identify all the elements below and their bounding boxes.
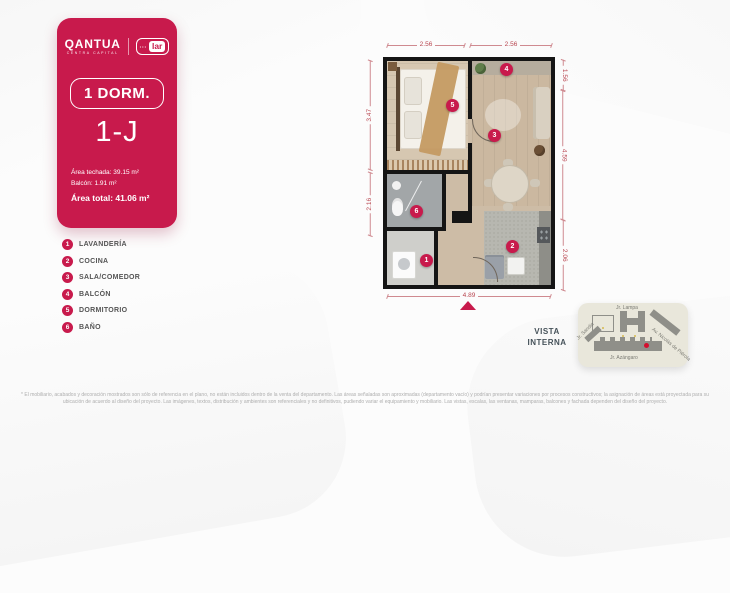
street-label-top: Jr. Lampa (616, 306, 638, 311)
unit-areas: Área techada: 39.15 m² Balcón: 1.91 m² Á… (71, 168, 149, 205)
plan-badge-cocina: 2 (506, 240, 519, 253)
legend-number-badge: 1 (62, 239, 73, 250)
dining-chair (503, 203, 513, 211)
legend-label: SALA/COMEDOR (79, 274, 140, 281)
pillow (404, 111, 422, 139)
dimension-left-top: 3.47 (367, 60, 374, 170)
dimension-right-mid: 4.59 (560, 90, 567, 220)
dimension-left-bottom: 2.16 (367, 172, 374, 236)
plan-badge-dormitorio: 5 (446, 99, 459, 112)
area-roof: Área techada: 39.15 m² (71, 168, 149, 179)
brand-name: QANTUA (65, 38, 121, 50)
logo-divider (128, 38, 129, 55)
legend-label: BAÑO (79, 324, 101, 331)
map-building (626, 318, 639, 325)
dimension-right-top: 1.56 (560, 60, 567, 91)
map-building (594, 341, 662, 351)
room-legend: 1 LAVANDERÍA 2 COCINA 3 SALA/COMEDOR 4 B… (62, 239, 140, 333)
legend-label: LAVANDERÍA (79, 241, 127, 248)
legal-disclaimer: * El mobiliario, acabados y decoración m… (20, 392, 710, 406)
legend-label: DORMITORIO (79, 307, 127, 314)
dimension-right-bottom: 2.06 (560, 220, 567, 291)
legend-item-balcon: 4 BALCÓN (62, 289, 140, 300)
floor-plan (383, 57, 555, 289)
legend-item-bano: 6 BAÑO (62, 322, 140, 333)
legend-item-sala-comedor: 3 SALA/COMEDOR (62, 272, 140, 283)
wall (434, 231, 438, 285)
legend-number-badge: 4 (62, 289, 73, 300)
lar-logo: ••• lar (136, 38, 170, 55)
nightstand (388, 62, 397, 71)
wall (387, 170, 472, 174)
lar-logo-dots: ••• (140, 45, 147, 49)
lar-logo-text: lar (149, 41, 165, 52)
dining-chair (530, 179, 540, 187)
kitchen-sink (507, 257, 525, 275)
unit-type-pill: 1 DORM. (70, 78, 164, 109)
plan-badge-bano: 6 (410, 205, 423, 218)
plan-badge-sala-comedor: 3 (488, 129, 501, 142)
unit-info-card: QANTUA CENTRA CAPITAL ••• lar 1 DORM. 1-… (57, 18, 177, 228)
wall (452, 211, 472, 223)
balcony-plant (475, 63, 486, 74)
brand-logo: QANTUA CENTRA CAPITAL (65, 38, 121, 56)
plan-badge-balcon: 4 (500, 63, 513, 76)
map-building (638, 311, 645, 332)
area-total: Área total: 41.06 m² (71, 191, 149, 205)
brand-logo-row: QANTUA CENTRA CAPITAL ••• lar (57, 38, 177, 56)
bathroom-sink (392, 181, 401, 190)
unit-location-dot (644, 343, 649, 348)
wall (468, 174, 472, 216)
legend-label: BALCÓN (79, 291, 111, 298)
street-label-bottom: Jr. Azángaro (610, 356, 638, 361)
dimension-top-right: 2.56 (470, 42, 552, 49)
brand-tagline: CENTRA CAPITAL (65, 52, 121, 56)
pillow (404, 77, 422, 105)
map-marker-dot (634, 335, 636, 337)
vista-interna-title: VISTA INTERNA (518, 327, 576, 349)
stove (537, 227, 550, 243)
legend-label: COCINA (79, 258, 108, 265)
dining-table (491, 165, 529, 203)
wall (442, 174, 446, 231)
map-marker-dot (602, 327, 604, 329)
legend-number-badge: 3 (62, 272, 73, 283)
sofa (533, 87, 550, 139)
kitchen-counter (539, 211, 551, 285)
background-wave (0, 247, 359, 593)
legend-number-badge: 5 (62, 305, 73, 316)
living-plant (534, 145, 545, 156)
site-map-card: Jr. Lampa Jr. Azángaro Av. Nicolás de Pi… (578, 303, 688, 367)
plan-badge-lavanderia: 1 (420, 254, 433, 267)
legend-item-cocina: 2 COCINA (62, 256, 140, 267)
dimension-top-left: 2.56 (387, 42, 465, 49)
map-marker-dot (622, 335, 624, 337)
area-balcony: Balcón: 1.91 m² (71, 179, 149, 190)
legend-item-dormitorio: 5 DORMITORIO (62, 305, 140, 316)
north-triangle-marker (460, 301, 476, 310)
closet (387, 160, 468, 170)
toilet (392, 201, 403, 216)
legend-number-badge: 6 (62, 322, 73, 333)
washing-machine (392, 251, 416, 279)
legend-number-badge: 2 (62, 256, 73, 267)
wall (468, 61, 472, 119)
unit-code: 1-J (57, 116, 177, 149)
legend-item-lavanderia: 1 LAVANDERÍA (62, 239, 140, 250)
dimension-bottom: 4.89 (387, 293, 551, 300)
